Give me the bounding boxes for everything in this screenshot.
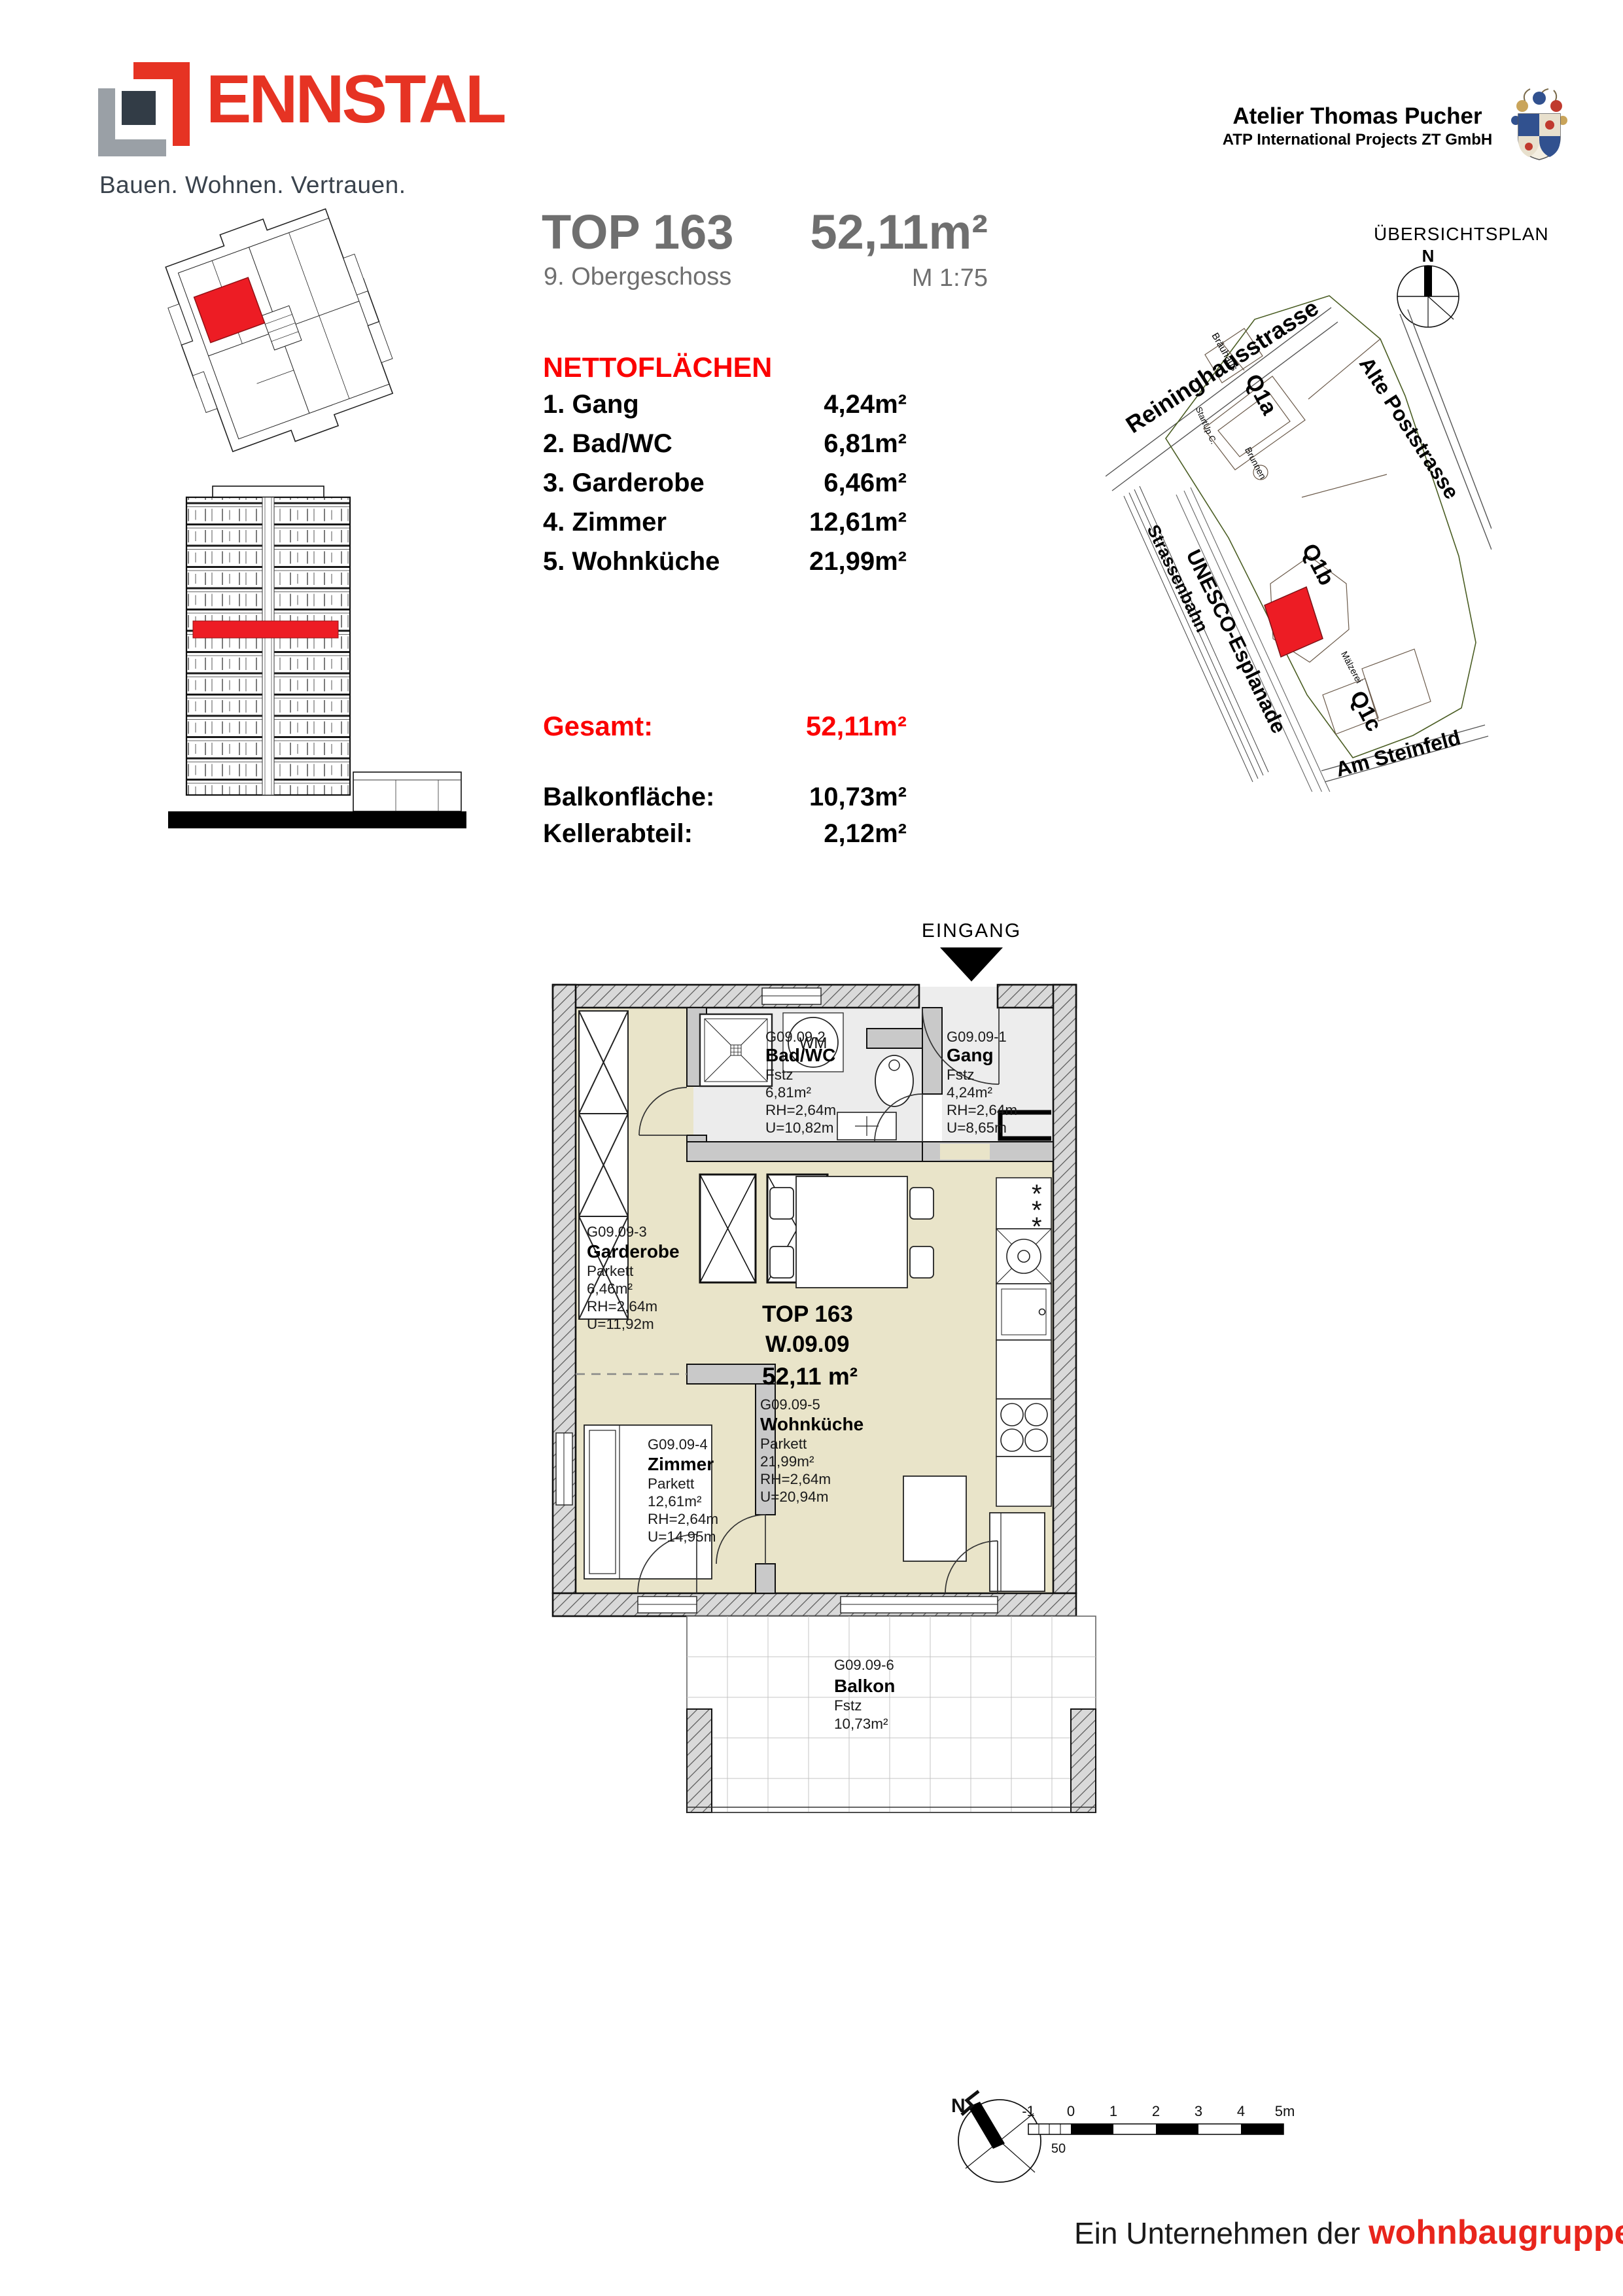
svg-text:G09.09-6: G09.09-6 xyxy=(834,1657,894,1673)
company-brand: wohnbaugruppe.at xyxy=(1369,2213,1623,2252)
unit-floor: 9. Obergeschoss xyxy=(544,263,731,291)
svg-text:Gang: Gang xyxy=(947,1045,994,1065)
entrance-threshold xyxy=(919,987,998,1008)
shower-icon xyxy=(700,1014,772,1086)
plan-document-page: { "colors": { "brand_red": "#e63323", "p… xyxy=(0,0,1623,2296)
svg-text:G09.09-5: G09.09-5 xyxy=(760,1396,820,1413)
svg-text:10,73m²: 10,73m² xyxy=(834,1716,888,1732)
room-area: 6,46m² xyxy=(824,468,907,498)
balcony-pier xyxy=(1071,1709,1096,1812)
brand-name: ENNSTAL xyxy=(206,65,504,133)
unit-title: TOP 163 xyxy=(542,208,733,256)
siteplan-map: Reininghausstrasse Strassenbahn UNESCO-E… xyxy=(1106,275,1492,792)
scale-sub-label: 50 xyxy=(1051,2142,1066,2156)
svg-text:Parkett: Parkett xyxy=(760,1436,807,1452)
netto-row: 5. Wohnküche 21,99m² xyxy=(543,547,907,576)
architect-subtitle: ATP International Projects ZT GmbH xyxy=(1213,131,1501,149)
keller-row: Kellerabteil: 2,12m² xyxy=(543,819,907,849)
svg-text:G09.09-1: G09.09-1 xyxy=(947,1029,1007,1045)
quarter-label-q1b: Q1b xyxy=(1297,540,1339,590)
room-label: 2. Bad/WC xyxy=(543,429,672,459)
footer-company-line: Ein Unternehmen der wohnbaugruppe.at xyxy=(1074,2213,1623,2252)
coat-of-arms-icon xyxy=(1508,86,1571,164)
svg-text:52,11 m²: 52,11 m² xyxy=(762,1363,858,1390)
room-label: 1. Gang xyxy=(543,390,639,419)
highlighted-floor xyxy=(193,621,338,638)
fridge-star-icon: * xyxy=(1032,1212,1042,1241)
netto-heading: NETTOFLÄCHEN xyxy=(543,352,772,384)
quarter-label-q1a: Q1a xyxy=(1240,370,1282,420)
svg-text:6,46m²: 6,46m² xyxy=(587,1280,633,1297)
svg-text:RH=2,64m: RH=2,64m xyxy=(947,1102,1017,1118)
street-label-am-steinfeld: Am Steinfeld xyxy=(1333,726,1463,781)
scale-tick-label: 3 xyxy=(1195,2103,1202,2119)
poi-label-brunnen: Brunnen xyxy=(1243,446,1268,481)
poi-label-startup: StartUp C. xyxy=(1194,405,1219,446)
keller-label: Kellerabteil: xyxy=(543,819,693,849)
building-elevation xyxy=(167,481,468,860)
svg-text:Fstz: Fstz xyxy=(765,1067,794,1083)
svg-text:Wohnküche: Wohnküche xyxy=(760,1414,864,1434)
toilet-icon xyxy=(875,1055,913,1106)
room-label: 5. Wohnküche xyxy=(543,547,720,576)
svg-text:G09.09-2: G09.09-2 xyxy=(765,1029,826,1045)
netto-list: 1. Gang 4,24m² 2. Bad/WC 6,81m² 3. Garde… xyxy=(543,390,907,586)
gang-opening xyxy=(940,1144,990,1159)
gesamt-value: 52,11m² xyxy=(806,711,907,742)
gesamt-label: Gesamt: xyxy=(543,711,653,742)
svg-text:Zimmer: Zimmer xyxy=(648,1454,714,1474)
svg-text:TOP 163: TOP 163 xyxy=(762,1301,853,1327)
company-prefix: Ein Unternehmen der xyxy=(1074,2216,1369,2251)
svg-text:U=10,82m: U=10,82m xyxy=(765,1120,833,1136)
architect-block: Atelier Thomas Pucher ATP International … xyxy=(1213,103,1501,149)
svg-text:Fstz: Fstz xyxy=(947,1067,975,1083)
room-area: 6,81m² xyxy=(824,429,907,459)
svg-text:RH=2,64m: RH=2,64m xyxy=(765,1102,836,1118)
room-label: 4. Zimmer xyxy=(543,508,667,537)
balkon-label: Balkonfläche: xyxy=(543,783,714,812)
scale-tick-label: -1 xyxy=(1022,2103,1035,2119)
room-label: 3. Garderobe xyxy=(543,468,705,498)
svg-text:RH=2,64m: RH=2,64m xyxy=(648,1511,718,1527)
room-label-balkon: G09.09-6 Balkon Fstz 10,73m² xyxy=(834,1657,895,1732)
balcony xyxy=(687,1616,1096,1812)
floor-plan: EINGANG xyxy=(540,916,1102,1826)
svg-text:U=11,92m: U=11,92m xyxy=(587,1316,654,1332)
scale-tick-label: 0 xyxy=(1067,2103,1075,2119)
scale-tick-label: 5m xyxy=(1275,2103,1295,2119)
balcony-pier xyxy=(687,1709,712,1812)
svg-text:12,61m²: 12,61m² xyxy=(648,1493,702,1510)
svg-text:Parkett: Parkett xyxy=(648,1475,695,1492)
svg-text:4,24m²: 4,24m² xyxy=(947,1084,993,1101)
building-key-plan xyxy=(147,193,409,461)
scale-bar: -1 0 1 2 3 4 5m 50 xyxy=(1021,2102,1302,2164)
balkon-row: Balkonfläche: 10,73m² xyxy=(543,783,907,812)
netto-row: 2. Bad/WC 6,81m² xyxy=(543,429,907,459)
svg-text:Fstz: Fstz xyxy=(834,1697,862,1714)
svg-text:RH=2,64m: RH=2,64m xyxy=(587,1298,657,1315)
svg-text:Garderobe: Garderobe xyxy=(587,1241,680,1262)
siteplan-title: ÜBERSICHTSPLAN xyxy=(1374,224,1549,245)
highlighted-building xyxy=(1265,587,1323,657)
north-label: N xyxy=(951,2095,966,2117)
svg-text:G09.09-3: G09.09-3 xyxy=(587,1224,647,1240)
netto-row: 4. Zimmer 12,61m² xyxy=(543,508,907,537)
street-label-alte-poststrasse: Alte Poststrasse xyxy=(1355,353,1464,503)
north-label: N xyxy=(1422,247,1435,266)
svg-text:W.09.09: W.09.09 xyxy=(765,1332,849,1357)
drawing-scale: M 1:75 xyxy=(818,264,988,292)
svg-text:Balkon: Balkon xyxy=(834,1676,895,1696)
room-area: 4,24m² xyxy=(824,390,907,419)
netto-row: 1. Gang 4,24m² xyxy=(543,390,907,419)
netto-row: 3. Garderobe 6,46m² xyxy=(543,468,907,498)
scale-tick-label: 4 xyxy=(1237,2103,1245,2119)
architect-name: Atelier Thomas Pucher xyxy=(1213,103,1501,130)
entrance-arrow-icon xyxy=(940,947,1003,981)
svg-text:U=20,94m: U=20,94m xyxy=(760,1489,828,1505)
kitchen-units xyxy=(996,1178,1051,1506)
scale-tick-label: 2 xyxy=(1152,2103,1160,2119)
street-label-unesco-esplanade: UNESCO-Esplanade xyxy=(1181,546,1291,737)
gesamt-row: Gesamt: 52,11m² xyxy=(543,711,907,742)
svg-text:6,81m²: 6,81m² xyxy=(765,1084,812,1101)
svg-text:Parkett: Parkett xyxy=(587,1263,634,1279)
room-area: 12,61m² xyxy=(809,508,907,537)
svg-text:G09.09-4: G09.09-4 xyxy=(648,1436,708,1453)
svg-text:U=14,95m: U=14,95m xyxy=(648,1528,716,1545)
svg-text:U=8,65m: U=8,65m xyxy=(947,1120,1007,1136)
entrance-label: EINGANG xyxy=(922,920,1021,942)
svg-text:21,99m²: 21,99m² xyxy=(760,1453,814,1470)
poi-label-maelzerei: Mälzerei xyxy=(1339,650,1365,685)
ennstal-logo-icon xyxy=(98,62,191,160)
unit-area: 52,11m² xyxy=(752,208,988,256)
room-area: 21,99m² xyxy=(809,547,907,576)
keller-value: 2,12m² xyxy=(824,819,907,849)
washbasin-icon xyxy=(837,1112,896,1140)
scale-tick-label: 1 xyxy=(1109,2103,1117,2119)
svg-text:Bad/WC: Bad/WC xyxy=(765,1045,835,1065)
unit-label: TOP 163 W.09.09 52,11 m² xyxy=(762,1301,858,1390)
balkon-value: 10,73m² xyxy=(809,783,907,812)
street-label-reininghausstrasse: Reininghausstrasse xyxy=(1121,294,1323,438)
svg-text:RH=2,64m: RH=2,64m xyxy=(760,1471,831,1487)
